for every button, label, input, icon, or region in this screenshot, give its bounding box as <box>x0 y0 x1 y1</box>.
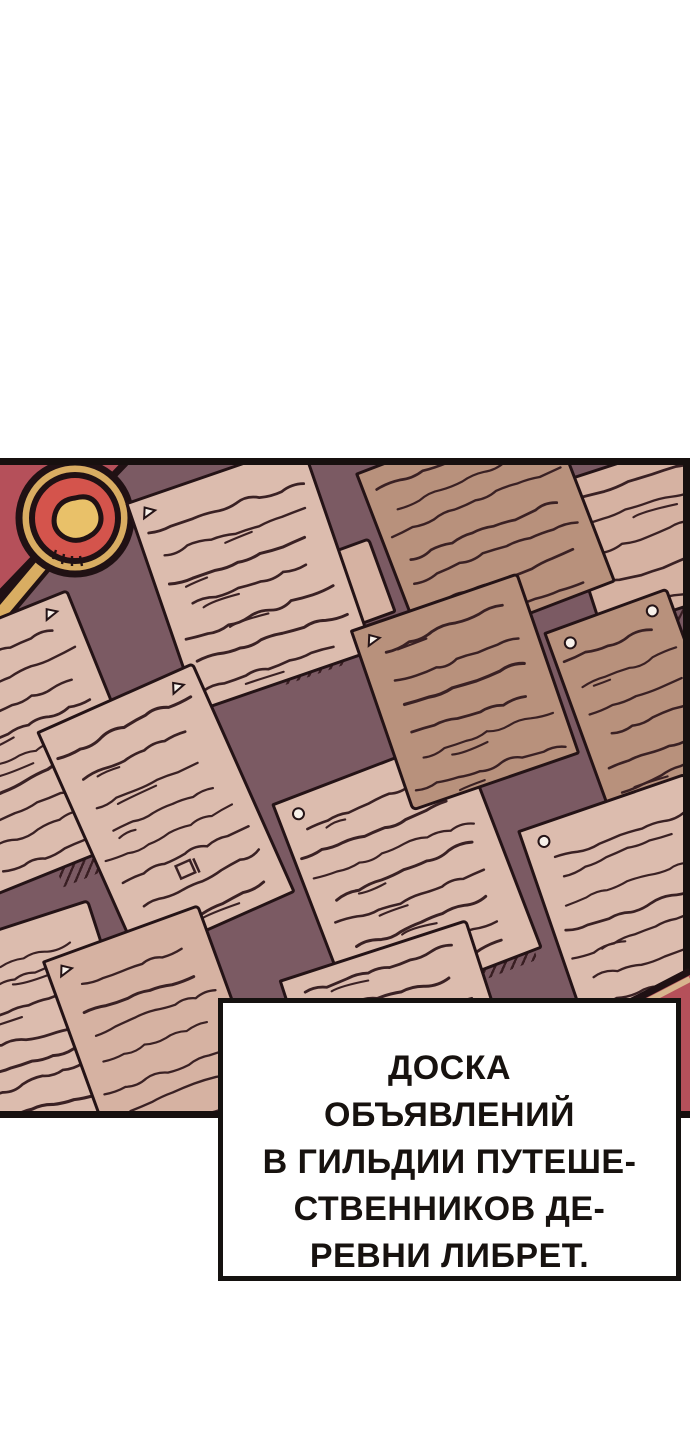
caption-text: ДОСКА ОБЪЯВЛЕНИЙ В ГИЛЬДИИ ПУТЕШЕ- СТВЕН… <box>223 1045 676 1280</box>
comic-page: ДОСКА ОБЪЯВЛЕНИЙ В ГИЛЬДИИ ПУТЕШЕ- СТВЕН… <box>0 0 690 1441</box>
note-scribble-lines <box>129 458 371 709</box>
panel-border-right <box>683 458 690 990</box>
panel-border-top <box>0 458 690 465</box>
gold-ring-pin-ornament <box>19 462 131 574</box>
caption-box: ДОСКА ОБЪЯВЛЕНИЙ В ГИЛЬДИИ ПУТЕШЕ- СТВЕН… <box>218 998 681 1281</box>
